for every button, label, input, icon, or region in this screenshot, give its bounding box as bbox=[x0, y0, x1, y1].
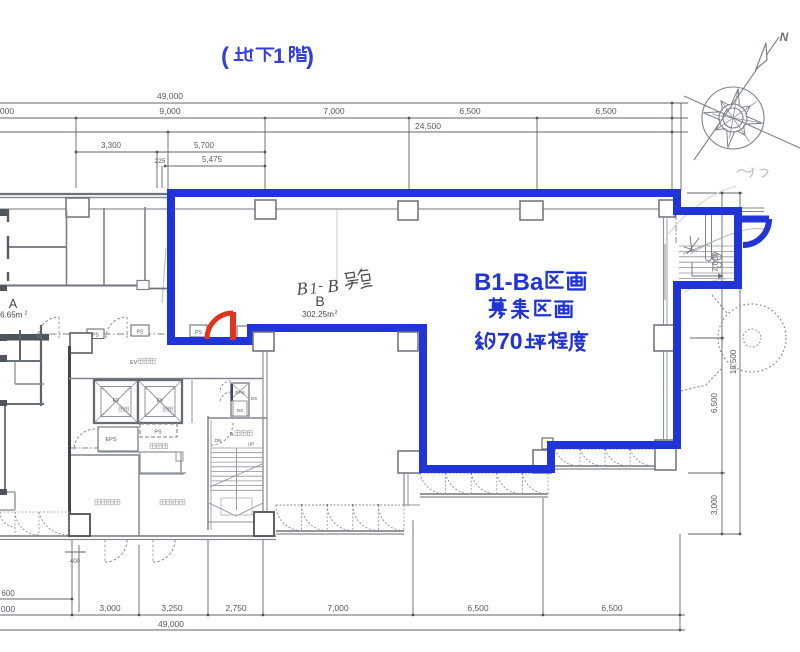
svg-text:B: B bbox=[296, 278, 309, 299]
svg-text:B: B bbox=[315, 293, 324, 309]
svg-text:18,500: 18,500 bbox=[729, 349, 738, 374]
svg-text:49,000: 49,000 bbox=[158, 619, 184, 629]
svg-text:B1-Ba: B1-Ba bbox=[474, 269, 544, 296]
svg-text:225: 225 bbox=[155, 158, 166, 165]
svg-text:5,700: 5,700 bbox=[194, 141, 215, 150]
svg-text:PS: PS bbox=[92, 333, 99, 339]
svg-text:2,750: 2,750 bbox=[225, 603, 247, 613]
svg-text:EV: EV bbox=[113, 398, 120, 404]
svg-text:N: N bbox=[780, 30, 789, 44]
svg-text:5,475: 5,475 bbox=[202, 155, 223, 164]
svg-text:6,500: 6,500 bbox=[595, 106, 617, 116]
svg-text:3,250: 3,250 bbox=[161, 603, 183, 613]
svg-text:): ) bbox=[306, 43, 314, 70]
svg-text:49,000: 49,000 bbox=[157, 91, 183, 101]
svg-text:EV: EV bbox=[130, 360, 138, 366]
svg-text:24,500: 24,500 bbox=[415, 121, 441, 131]
svg-text:6,500: 6,500 bbox=[459, 106, 481, 116]
svg-text:2: 2 bbox=[25, 311, 28, 317]
svg-text:000: 000 bbox=[0, 106, 14, 116]
svg-text:DS: DS bbox=[251, 396, 257, 401]
svg-text:A: A bbox=[9, 297, 18, 311]
svg-text:70: 70 bbox=[497, 328, 523, 354]
svg-text:PS: PS bbox=[137, 330, 144, 336]
svg-text:6,500: 6,500 bbox=[467, 603, 489, 613]
svg-text:7,000: 7,000 bbox=[327, 603, 349, 613]
svg-text:96.65m: 96.65m bbox=[0, 311, 23, 320]
svg-text:(: ( bbox=[221, 43, 229, 70]
svg-text:600: 600 bbox=[1, 589, 15, 598]
svg-text:7,000: 7,000 bbox=[323, 106, 345, 116]
svg-text:PS: PS bbox=[154, 430, 162, 436]
svg-text:9,000: 9,000 bbox=[159, 106, 181, 116]
svg-text:DS: DS bbox=[237, 408, 243, 413]
svg-text:UP: UP bbox=[248, 442, 255, 448]
svg-text:3,000: 3,000 bbox=[99, 603, 121, 613]
svg-text:302.25m: 302.25m bbox=[302, 310, 334, 319]
svg-text:EPS: EPS bbox=[105, 437, 116, 443]
svg-text:EPS: EPS bbox=[235, 390, 244, 395]
svg-text:2: 2 bbox=[335, 310, 338, 316]
svg-text:6,500: 6,500 bbox=[601, 603, 623, 613]
svg-text:6,500: 6,500 bbox=[710, 392, 719, 413]
svg-text:PS: PS bbox=[195, 330, 202, 336]
svg-text:1: 1 bbox=[273, 45, 285, 68]
svg-text:3,300: 3,300 bbox=[101, 141, 122, 150]
svg-text:3,000: 3,000 bbox=[710, 494, 719, 515]
svg-text:400: 400 bbox=[70, 559, 81, 565]
svg-text:EV: EV bbox=[157, 398, 164, 404]
svg-text:B: B bbox=[326, 275, 339, 296]
svg-text:000: 000 bbox=[1, 604, 15, 614]
